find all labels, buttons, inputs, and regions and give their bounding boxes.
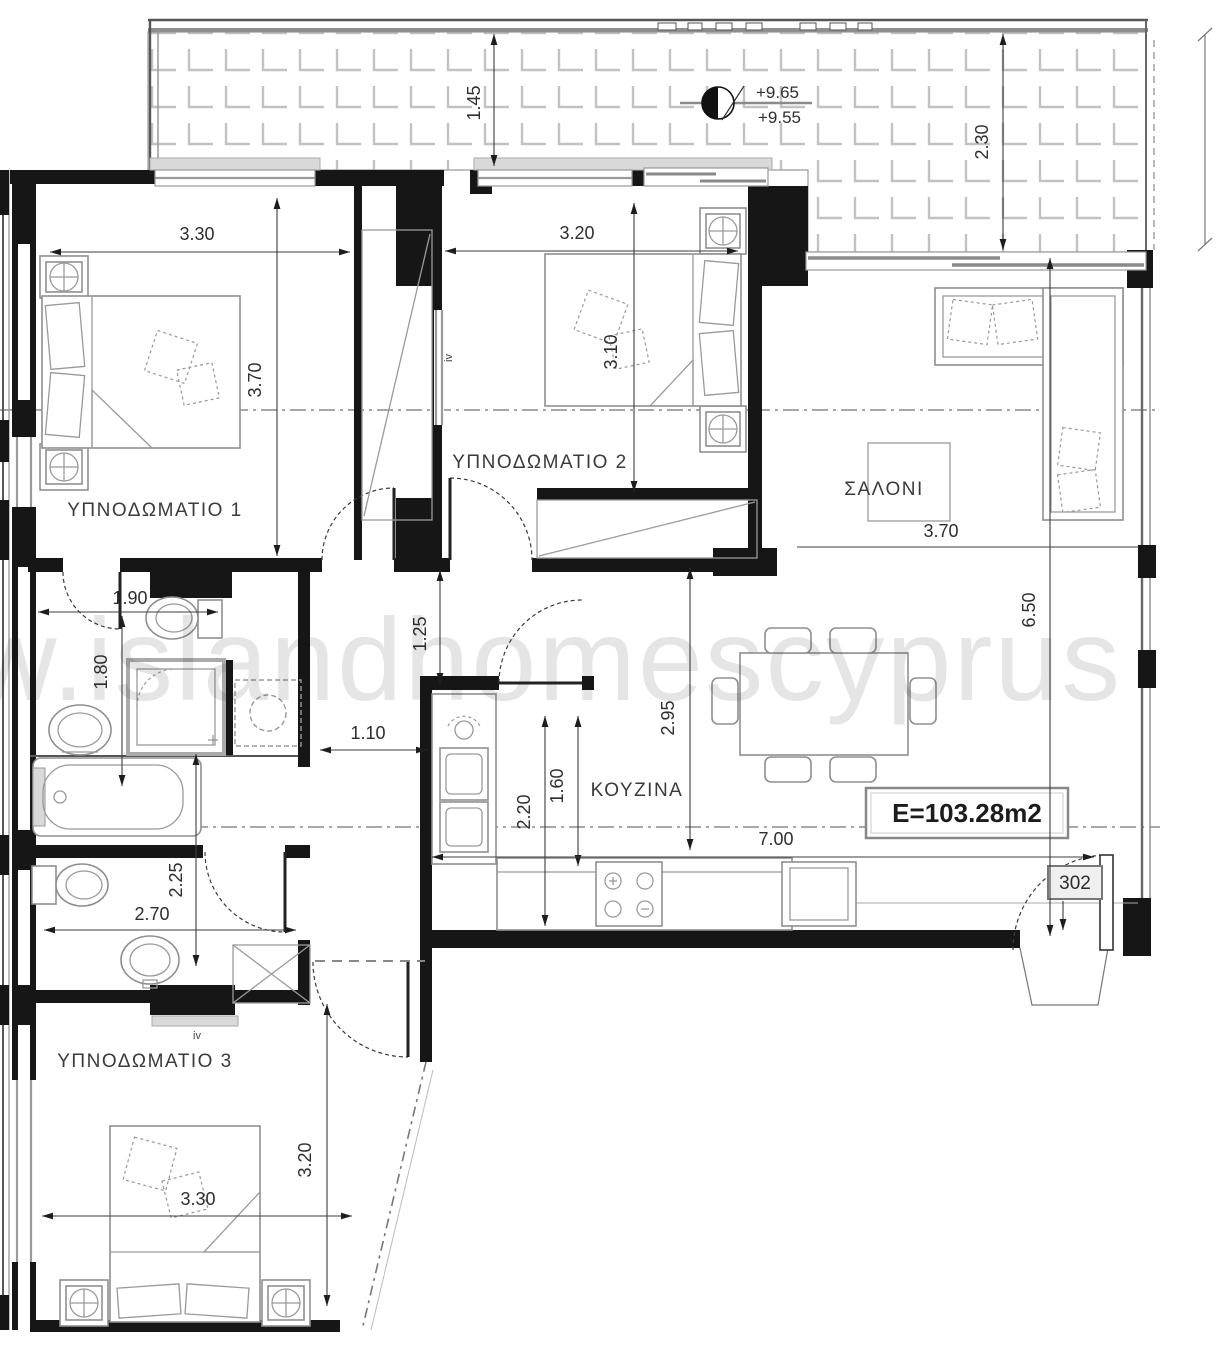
dim-bedroom2-width: 3.20 — [445, 223, 738, 251]
svg-text:2.20: 2.20 — [514, 794, 534, 829]
svg-text:3.10: 3.10 — [601, 334, 621, 369]
svg-text:1.45: 1.45 — [464, 85, 484, 120]
bedroom3-bed — [60, 1126, 310, 1326]
window-tag-bedroom3: iv — [193, 1030, 201, 1042]
label-kitchen: ΚΟΥΖΙΝΑ — [591, 780, 684, 801]
floor-plan-page: +9.65 +9.55 — [0, 0, 1221, 1355]
dim-bedroom3-depth: 3.20 — [295, 1004, 327, 1306]
wc-basin — [121, 936, 179, 988]
svg-text:7.00: 7.00 — [758, 829, 793, 849]
svg-text:3.20: 3.20 — [559, 223, 594, 243]
svg-text:2.30: 2.30 — [972, 124, 992, 159]
watermark: w.islandhomescyprus — [0, 594, 1122, 725]
svg-text:3.20: 3.20 — [295, 1142, 315, 1177]
sofa — [935, 288, 1123, 520]
window-tag-shaft: iv — [443, 354, 455, 362]
bedroom3-left-window — [10, 1080, 38, 1262]
bathtub — [33, 758, 201, 836]
wc-door — [205, 852, 285, 932]
dim-living-width: 3.70 — [797, 521, 1138, 547]
level-upper: +9.65 — [756, 83, 799, 102]
bedroom1-balcony-window — [150, 158, 320, 186]
floor-plan-drawing: +9.65 +9.55 — [0, 0, 1221, 1355]
dim-bedroom1-width: 3.30 — [50, 224, 350, 252]
bedroom2-balcony-window — [474, 158, 772, 186]
svg-text:3.30: 3.30 — [179, 224, 214, 244]
level-lower: +9.55 — [758, 108, 801, 127]
apartment-number: 302 — [1059, 873, 1091, 894]
bedroom2-bed — [545, 208, 746, 452]
svg-text:2.25: 2.25 — [166, 862, 186, 897]
shaft-window — [434, 310, 444, 425]
bedroom2-door — [450, 478, 532, 560]
salon-sliding-door — [806, 252, 1146, 270]
dim-wc-width: 2.70 — [44, 904, 296, 930]
area-label: E=103.28m2 — [892, 798, 1042, 828]
svg-text:3.70: 3.70 — [245, 362, 265, 397]
svg-text:3.70: 3.70 — [923, 521, 958, 541]
dim-hall-width: 1.10 — [320, 723, 427, 750]
svg-text:2.70: 2.70 — [134, 904, 169, 924]
bedroom1-left-window — [10, 437, 38, 507]
hob — [596, 862, 662, 926]
label-bedroom2: ΥΠΝΟΔΩΜΑΤΙΟ 2 — [452, 452, 628, 473]
bedroom3-door — [313, 961, 425, 1057]
svg-text:3.30: 3.30 — [180, 1189, 215, 1209]
fridge — [782, 862, 856, 926]
svg-text:1.10: 1.10 — [350, 723, 385, 743]
svg-text:1.60: 1.60 — [547, 768, 567, 803]
label-bedroom3: ΥΠΝΟΔΩΜΑΤΙΟ 3 — [57, 1051, 233, 1072]
area-box: E=103.28m2 — [866, 788, 1068, 838]
wc-toilet — [32, 864, 108, 906]
label-living-room: ΣΑΛΟΝΙ — [844, 479, 924, 500]
balcony-terrace — [148, 20, 1212, 254]
bedroom3-window-sill — [152, 1016, 238, 1026]
dim-kitchen-b: 1.60 — [547, 716, 578, 866]
bedroom1-bed — [40, 256, 240, 490]
label-bedroom1: ΥΠΝΟΔΩΜΑΤΙΟ 1 — [67, 500, 243, 521]
